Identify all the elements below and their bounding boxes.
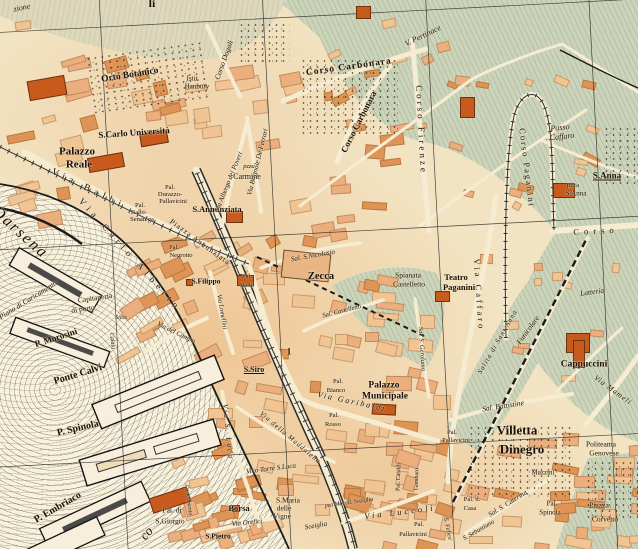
- historic-city-map-genoa: zioneliOrto BotanicoIstit.HanburyCorso D…: [0, 0, 638, 549]
- stream-line: [560, 50, 638, 88]
- roads-layer: [0, 0, 638, 549]
- harbor-piers: [9, 248, 224, 549]
- funicular-zecca-line: [257, 257, 424, 336]
- darsena-quay: [0, 208, 82, 244]
